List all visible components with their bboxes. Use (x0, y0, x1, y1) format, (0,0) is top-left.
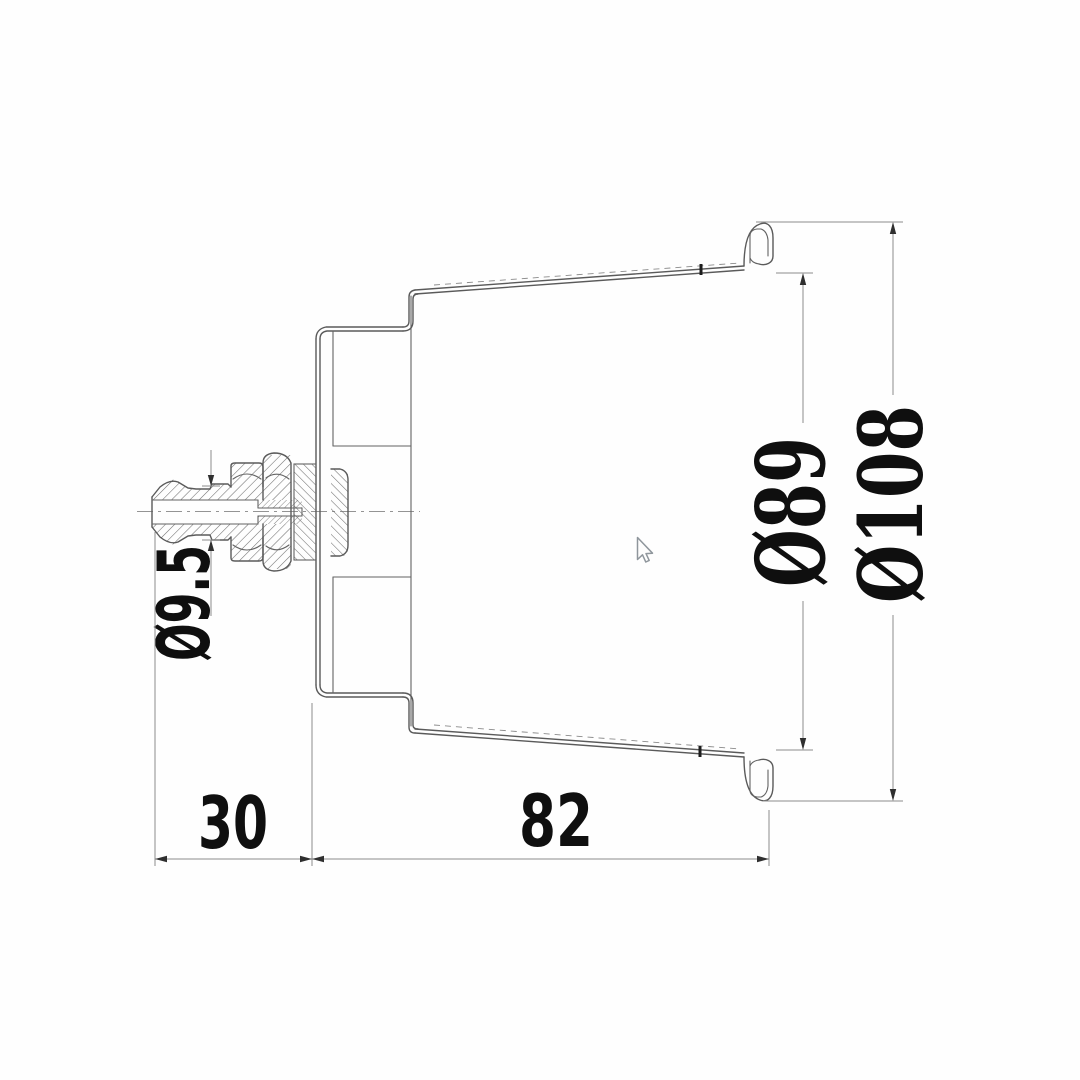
cup-body (403, 223, 773, 801)
dim-30-arrow-right (300, 856, 312, 862)
dim-label-rim-outer-dia: Ø108 (839, 405, 943, 603)
dim-89-arrow-up (800, 273, 806, 285)
dim-label-body-depth: 82 (519, 779, 593, 863)
barb-top-section-hatch (152, 479, 231, 500)
dim-82-arrow-left (312, 856, 324, 862)
cup-top-wall-inner (415, 270, 744, 294)
dim-82-arrow-right (757, 856, 769, 862)
mouse-cursor (638, 538, 653, 563)
technical-drawing: Ø9.5 Ø89 Ø108 30 82 (0, 0, 1080, 1080)
bottom-rim-lip-edge (761, 770, 768, 797)
top-rim-lip (744, 223, 773, 266)
barb-bottom-section-hatch (152, 524, 231, 545)
dim-108-arrow-down (890, 789, 896, 801)
cup-top-wall-outer (415, 266, 744, 290)
dim-30-arrow-left (155, 856, 167, 862)
top-rim-lip-inner (750, 229, 761, 263)
dimension-rim-inner-dia: Ø89 (736, 273, 847, 750)
bottom-rim-lip-curl (750, 760, 759, 766)
bottom-rim-lip-inner (750, 761, 761, 797)
cup-bottom-wall-inner (415, 729, 744, 753)
inner-nut-section-hatch (331, 469, 348, 556)
top-rim-lip-edge (761, 229, 768, 256)
top-rim-lip-curl (750, 258, 759, 264)
dim-label-flange-offset: 30 (198, 781, 268, 865)
dim-108-arrow-up (890, 222, 896, 234)
dim-89-arrow-down (800, 738, 806, 750)
bottom-rim-lip-outer (744, 757, 773, 801)
bottom-rim-lip (744, 757, 773, 801)
gasket-section-hatch (294, 464, 316, 560)
dim-label-rim-inner-dia: Ø89 (736, 437, 847, 587)
dimension-depths: 30 82 (155, 532, 769, 866)
nut-bottom-section-hatch (231, 524, 263, 561)
flange-bottom-corner-outer (316, 685, 403, 697)
cursor-arrow-icon (638, 538, 653, 563)
nut-top-section-hatch (231, 463, 263, 500)
drawing-canvas: Ø9.5 Ø89 Ø108 30 82 (0, 0, 1080, 1080)
top-rim-lip-outer (744, 223, 773, 266)
flange-top-corner-outer (316, 327, 403, 339)
